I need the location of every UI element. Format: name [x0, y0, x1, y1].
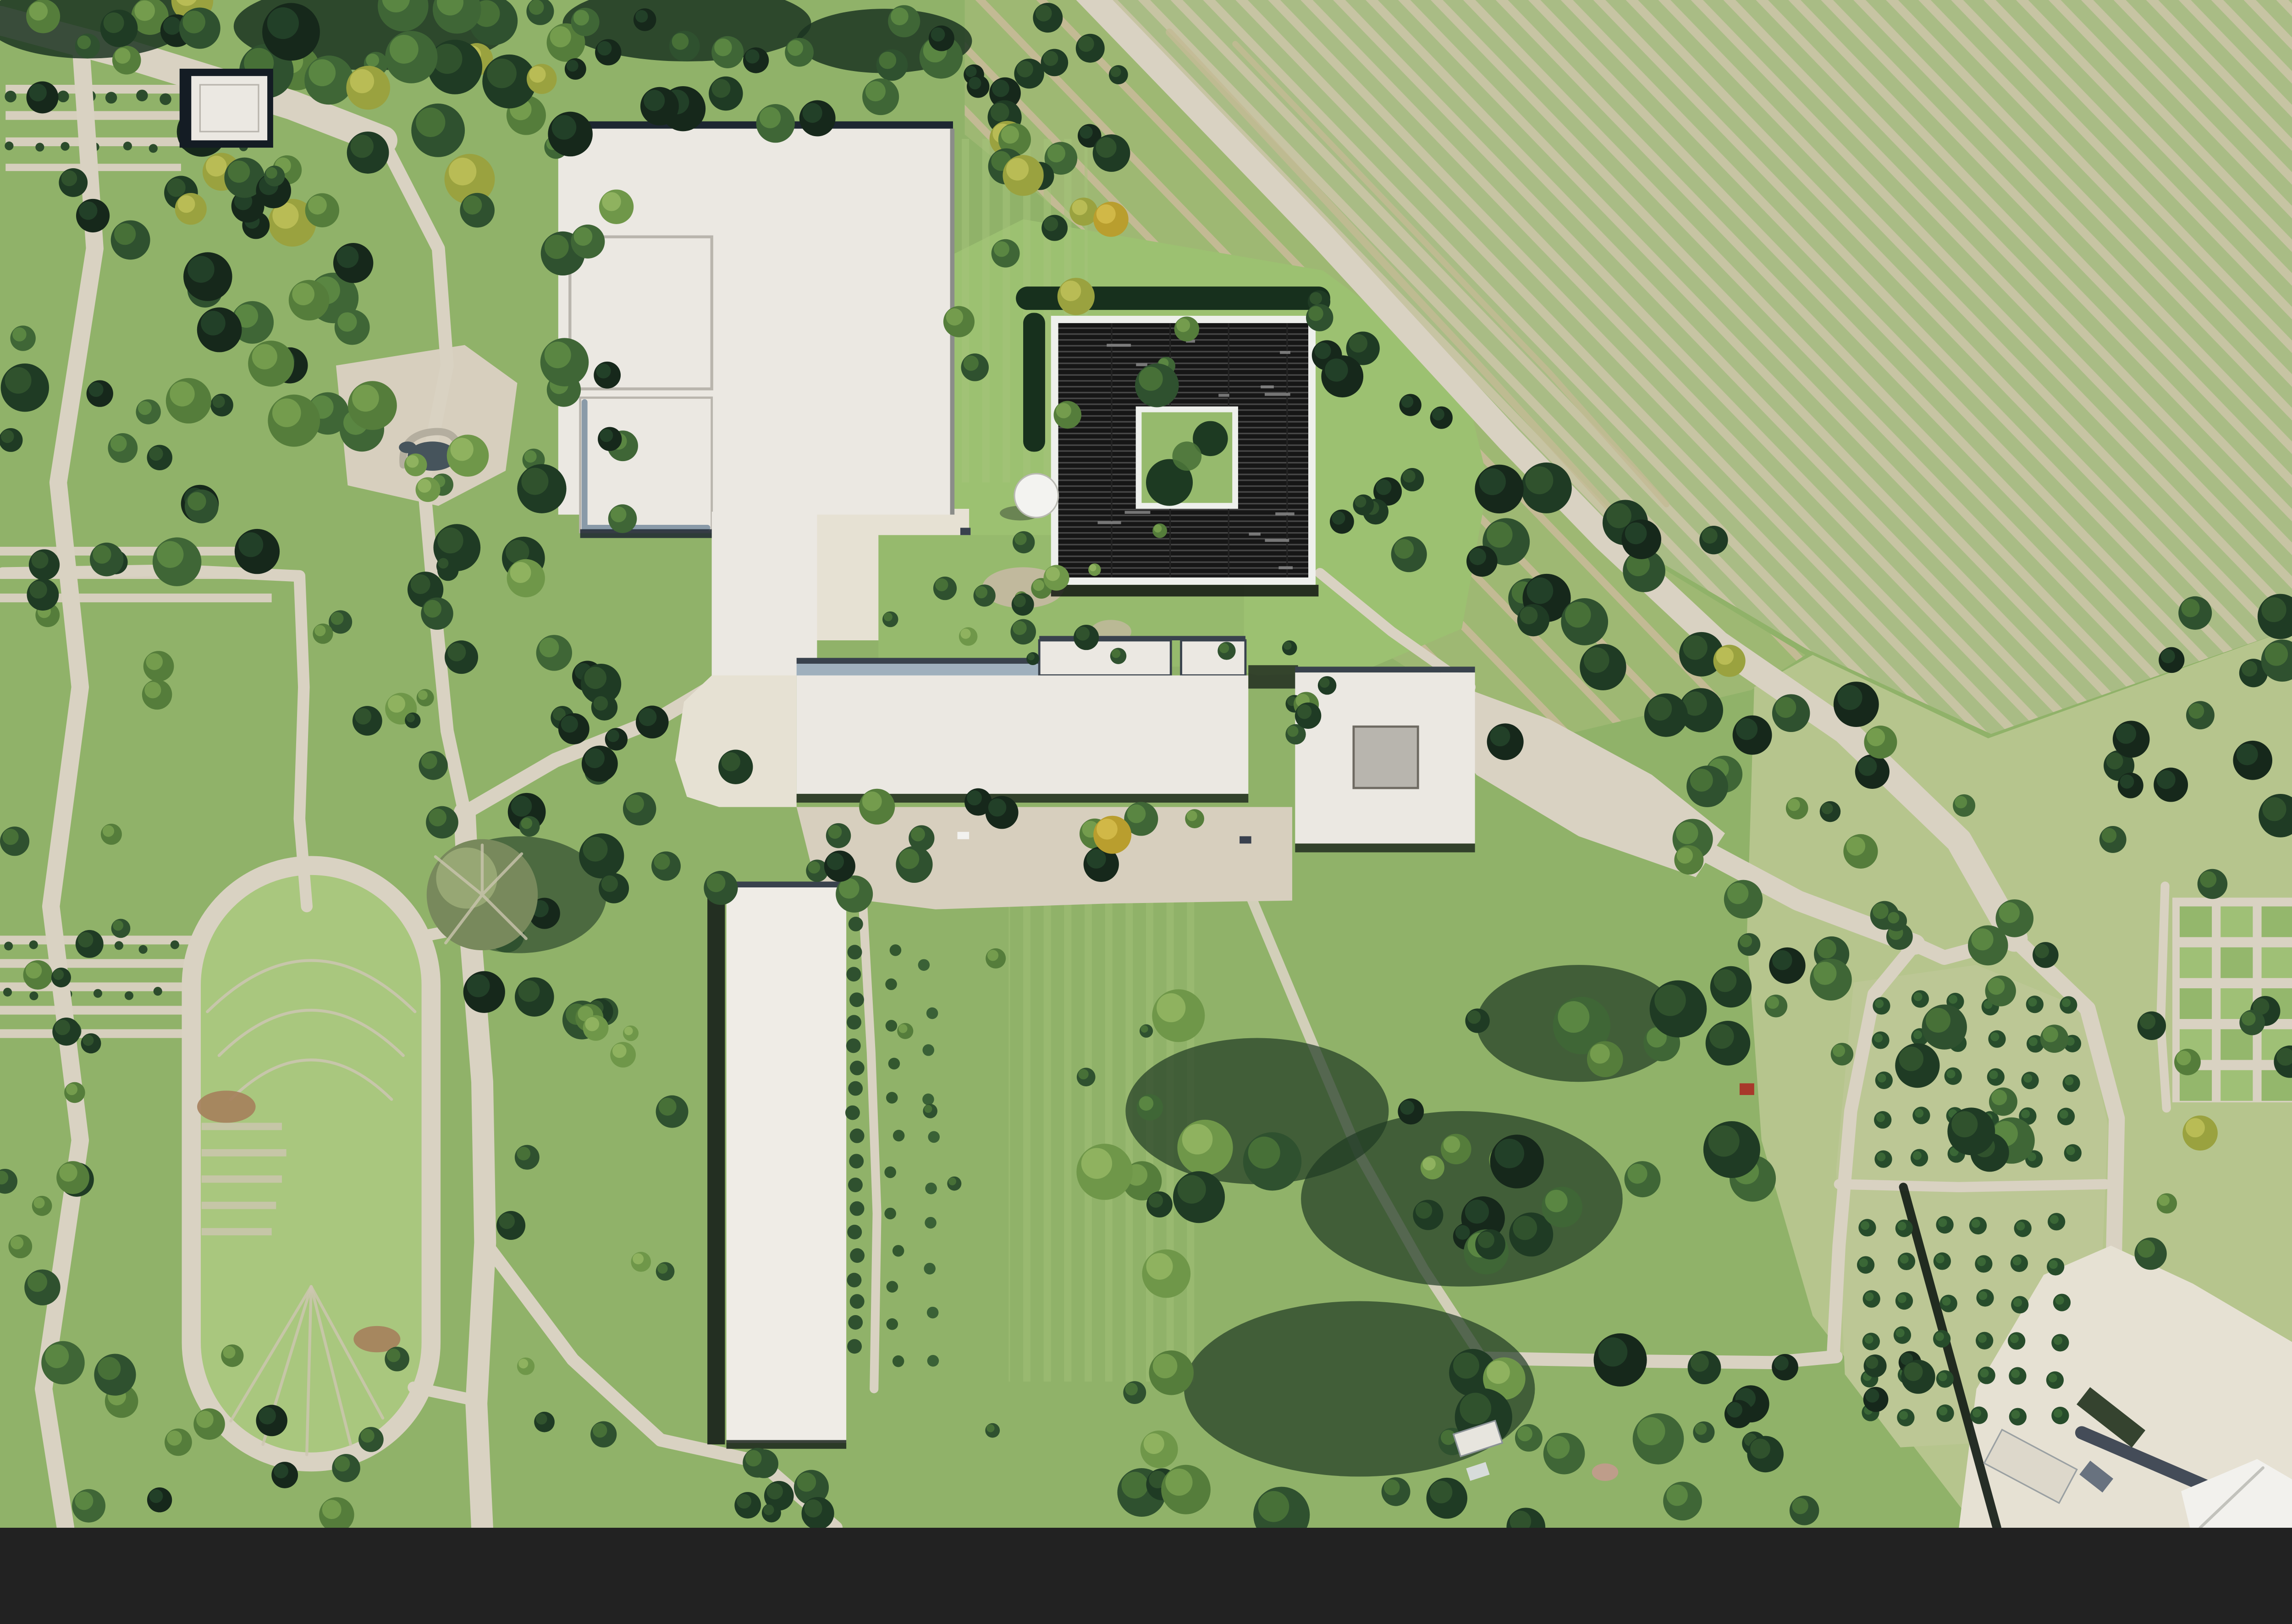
- hedge-row-east-of-greenhouse: [850, 1061, 865, 1075]
- trees-tree-highlight: [29, 84, 46, 101]
- trees-tree-highlight: [574, 227, 593, 246]
- forest-tree-highlight: [1384, 1480, 1400, 1496]
- bed-bushes: [123, 142, 132, 150]
- bed-bushes: [29, 991, 38, 1000]
- trees-tree-highlight: [267, 7, 299, 39]
- trees-tree-highlight: [1047, 144, 1065, 162]
- trees-tree-highlight: [449, 158, 476, 185]
- trees-tree-highlight: [78, 932, 93, 947]
- trees-tree-highlight: [1792, 1498, 1808, 1514]
- trees-tree-highlight: [552, 115, 577, 140]
- trees-tree-highlight: [624, 1027, 633, 1035]
- yard-trees-tree-highlight: [1127, 804, 1146, 823]
- trees-tree-highlight: [1999, 902, 2020, 923]
- orchard-trees-highlight: [1972, 1219, 1980, 1228]
- trees-tree-highlight: [2261, 597, 2286, 622]
- trees-tree-highlight: [55, 1020, 70, 1035]
- trees-tree-highlight: [1520, 606, 1538, 624]
- forest-tree-highlight: [1182, 1124, 1213, 1155]
- orchard-trees-highlight: [1939, 1372, 1947, 1381]
- trees-tree-highlight: [1625, 523, 1647, 545]
- trees-tree-highlight: [331, 612, 343, 625]
- shrub-row: [928, 1131, 940, 1143]
- trees-tree-highlight: [1080, 126, 1092, 138]
- trees-tree-highlight: [1056, 403, 1071, 418]
- forest-tree-highlight: [1487, 1360, 1510, 1384]
- forest-tree-highlight: [1121, 1472, 1148, 1498]
- long-building-skyband-shadow: [797, 658, 1045, 664]
- trees-tree-highlight: [1750, 1439, 1770, 1459]
- trees-tree-highlight: [788, 40, 804, 56]
- trees-tree-highlight: [2043, 1027, 2058, 1042]
- trees-tree-highlight: [1971, 928, 1993, 950]
- bed-bushes: [4, 941, 13, 950]
- orchard-trees-highlight: [2011, 1410, 2020, 1419]
- shrub-row: [925, 1217, 937, 1229]
- hedge-row-east-of-greenhouse: [847, 1339, 862, 1354]
- orchard-trees-highlight: [1913, 1151, 1922, 1160]
- trees-tree-highlight: [26, 963, 42, 979]
- forest-tree-highlight: [1708, 1125, 1739, 1156]
- lawn-shrubs-tree-highlight: [948, 1178, 956, 1185]
- oval-bed-strip: [202, 1149, 286, 1156]
- trees-tree-highlight: [2, 829, 18, 845]
- trees-tree-highlight: [545, 341, 571, 368]
- yellow-tree-highlight: [2186, 1118, 2205, 1137]
- trees-tree-highlight: [366, 54, 379, 67]
- trees-tree-highlight: [104, 12, 124, 33]
- trees-tree-highlight: [633, 1253, 644, 1264]
- bed-bushes: [5, 91, 17, 103]
- orchard-trees-highlight: [1972, 1409, 1981, 1417]
- trees-tree-highlight: [585, 1017, 599, 1031]
- trees-tree-highlight: [1899, 1046, 1923, 1071]
- trees-tree-highlight: [1479, 468, 1506, 495]
- forest-tree-highlight: [1146, 1253, 1173, 1280]
- forest-tree-highlight: [1495, 1139, 1524, 1168]
- orchard-trees-highlight: [2011, 1369, 2020, 1378]
- trees-tree-highlight: [585, 749, 605, 768]
- trees-tree-highlight: [611, 506, 626, 522]
- courtyard-bushes-tree-highlight: [1028, 653, 1035, 660]
- trees-tree-highlight: [518, 1359, 528, 1368]
- yellow-tree-highlight: [1006, 158, 1029, 181]
- trees-tree-highlight: [573, 10, 589, 26]
- solar-panel-glints: [1261, 385, 1274, 388]
- trees-tree-highlight: [593, 1423, 607, 1437]
- trees-tree-highlight: [879, 52, 896, 69]
- orchard-trees-highlight: [2062, 998, 2071, 1007]
- trees-tree-highlight: [1951, 1111, 1978, 1137]
- courtyard-bushes-tree-highlight: [1014, 595, 1026, 607]
- trees-tree-highlight: [550, 26, 571, 47]
- orchard-trees-highlight: [2016, 1222, 2025, 1230]
- trees-tree-highlight: [2262, 797, 2286, 821]
- orchard-trees-highlight: [1939, 1407, 1947, 1415]
- shrub-row: [890, 944, 902, 956]
- trees-tree-highlight: [607, 730, 619, 742]
- yard-trees-tree-highlight: [1187, 810, 1197, 821]
- orchard-trees-highlight: [1938, 1218, 1947, 1227]
- orchard-trees-highlight: [1942, 1297, 1950, 1305]
- yard-trees-tree-highlight: [911, 827, 925, 842]
- trees-tree-highlight: [1078, 36, 1094, 52]
- trees-tree-highlight: [98, 1357, 121, 1380]
- trees-tree-highlight: [66, 1084, 77, 1095]
- bedgrid-path: [2161, 886, 2167, 1108]
- solar-panel-glints: [1136, 363, 1147, 366]
- white-tank: [1014, 473, 1058, 517]
- oval-bed-strip: [202, 1123, 282, 1130]
- trees-tree-highlight: [149, 447, 163, 461]
- bed-cell: [2220, 1070, 2253, 1101]
- trees-tree-highlight: [804, 1499, 822, 1517]
- forest-tree-highlight: [1465, 1200, 1489, 1223]
- forest-tree-highlight: [1149, 1194, 1163, 1208]
- solar-panel-glints: [1107, 344, 1131, 347]
- forest-tree-highlight: [1545, 1190, 1568, 1212]
- hedge-row-east-of-greenhouse: [849, 1154, 864, 1168]
- aerial-scene-canvas: [0, 0, 2292, 1528]
- orchard-trees-highlight: [1861, 1221, 1869, 1230]
- trees-tree-highlight: [2106, 753, 2123, 770]
- trees-tree-highlight: [1788, 799, 1800, 811]
- hedge-row-east-of-greenhouse: [850, 1294, 865, 1309]
- square-building-shadow-south: [1295, 843, 1475, 852]
- trees-tree-highlight: [1487, 522, 1513, 548]
- bed-bushes: [3, 988, 12, 996]
- orchard-trees-highlight: [1865, 1292, 1873, 1301]
- solar-panel-glints: [1125, 511, 1151, 514]
- trees-tree-highlight: [12, 327, 27, 341]
- forest-tree-highlight: [1178, 1175, 1206, 1204]
- orchard-trees-highlight: [2049, 1374, 2057, 1382]
- courtyard-bushes-tree-highlight: [1046, 567, 1060, 581]
- trees-tree-highlight: [1709, 1024, 1734, 1049]
- forest-tree-highlight: [1598, 1338, 1627, 1367]
- forest-tree-highlight: [1081, 1148, 1112, 1178]
- courtyard-bushes-tree-highlight: [1013, 621, 1027, 635]
- hedge-row-east-of-greenhouse: [847, 1225, 862, 1239]
- trees-tree-highlight: [75, 1492, 93, 1510]
- trees-tree-highlight: [32, 551, 49, 568]
- trees-tree-highlight: [45, 1344, 69, 1368]
- courtyard-bushes-tree-highlight: [975, 586, 988, 599]
- trees-tree-highlight: [1740, 935, 1752, 947]
- orchard-trees-highlight: [1935, 1332, 1944, 1341]
- trees-tree-highlight: [1565, 602, 1591, 628]
- trees-tree-highlight: [1319, 677, 1329, 688]
- long-building-skyband: [797, 664, 1039, 677]
- trees-tree-highlight: [529, 0, 544, 15]
- orchard-trees-highlight: [1946, 1069, 1955, 1078]
- bed-bushes: [136, 90, 148, 102]
- trees-tree-highlight: [157, 541, 184, 568]
- connector-wing-roof: [712, 512, 817, 675]
- trees-tree-highlight: [437, 528, 463, 553]
- trees-tree-highlight: [2116, 723, 2136, 743]
- bed-cell: [2180, 988, 2212, 1019]
- trees-tree-highlight: [1691, 1354, 1709, 1372]
- orchard-trees-highlight: [1898, 1294, 1906, 1303]
- forest-tree-highlight: [1590, 1044, 1610, 1063]
- trees-tree-highlight: [745, 50, 760, 64]
- trees-tree-highlight: [992, 80, 1009, 97]
- yard-trees-tree-highlight: [862, 792, 882, 811]
- orchard-trees-highlight: [1935, 1255, 1944, 1263]
- orchard-trees-highlight: [1915, 1109, 1923, 1118]
- lawn-shrubs-tree-highlight: [1125, 1383, 1138, 1395]
- trees-tree-highlight: [722, 752, 740, 771]
- trees-tree-highlight: [1325, 358, 1348, 381]
- shrub-row: [922, 1094, 934, 1106]
- park-path: [299, 576, 307, 907]
- trees-tree-highlight: [467, 974, 490, 997]
- trees-tree-highlight: [322, 1500, 342, 1519]
- trees-tree-highlight: [2137, 1240, 2155, 1258]
- orchard-trees-highlight: [2013, 1298, 2022, 1307]
- forest-tree-highlight: [1627, 1164, 1647, 1184]
- trees-tree-highlight: [2159, 1195, 2170, 1206]
- bed-bushes: [171, 941, 179, 949]
- lawn-shrubs-tree-highlight: [924, 1105, 932, 1113]
- trees-tree-highlight: [387, 1349, 400, 1362]
- trees-tree-highlight: [1727, 883, 1748, 904]
- yellow-tree-highlight: [350, 69, 374, 94]
- orchard-trees-highlight: [1899, 1411, 1908, 1420]
- orchard-trees-highlight: [1864, 1335, 1873, 1343]
- orchard-trees-highlight: [1876, 1113, 1885, 1122]
- trees-tree-highlight: [487, 59, 517, 88]
- trees-tree-highlight: [1866, 1356, 1878, 1369]
- bed-bushes: [105, 92, 117, 104]
- trees-tree-highlight: [1774, 1356, 1789, 1371]
- trees-tree-highlight: [1846, 837, 1865, 855]
- trees-tree-highlight: [745, 1450, 762, 1467]
- greenhouse-west-shadow: [707, 889, 725, 1444]
- orchard-trees-highlight: [1978, 1334, 1987, 1343]
- aerial-photo-screenshot: [0, 0, 2292, 1528]
- trees-tree-highlight: [1683, 635, 1707, 660]
- forest-tree-highlight: [1248, 1137, 1280, 1169]
- trees-tree-highlight: [450, 438, 473, 461]
- trees-tree-highlight: [994, 241, 1009, 257]
- greenhouse-building-roof: [727, 887, 847, 1443]
- trees-tree-highlight: [5, 367, 32, 394]
- forest-tree-highlight: [1157, 993, 1185, 1022]
- trees-tree-highlight: [1310, 292, 1322, 304]
- hedge-row-east-of-greenhouse: [848, 1315, 863, 1330]
- orchard-trees-highlight: [1977, 1257, 1986, 1266]
- courtyard-bushes-tree-highlight: [1089, 564, 1096, 571]
- trees-tree-highlight: [1677, 848, 1693, 864]
- yard-trees-tree-highlight: [808, 861, 820, 874]
- courtyard-bushes-tree-highlight: [1014, 533, 1027, 545]
- trees-tree-highlight: [521, 818, 532, 829]
- trees-tree-highlight: [29, 581, 47, 599]
- lawn-shrubs-tree-highlight: [898, 1024, 907, 1033]
- hedge-row-east-of-greenhouse: [849, 992, 864, 1007]
- trees-tree-highlight: [2102, 828, 2116, 842]
- trees-tree-highlight: [259, 1407, 276, 1425]
- trees-tree-highlight: [201, 311, 226, 336]
- shrub-row: [924, 1263, 936, 1275]
- courtyard-bushes-tree-highlight: [935, 578, 948, 591]
- trees-tree-highlight: [1713, 969, 1736, 992]
- trees-tree-highlight: [79, 201, 97, 220]
- white-van: [958, 832, 970, 839]
- trees-tree-highlight: [103, 825, 114, 837]
- shrub-row: [886, 1092, 898, 1104]
- trees-tree-highlight: [463, 196, 482, 215]
- courtyard-bushes-tree-highlight: [1154, 524, 1162, 532]
- trees-tree-highlight: [1991, 1090, 2007, 1105]
- trees-tree-highlight: [1332, 512, 1345, 525]
- trees-tree-highlight: [1727, 1402, 1742, 1418]
- trees-tree-highlight: [115, 48, 130, 64]
- trees-tree-highlight: [421, 753, 437, 769]
- trees-tree-highlight: [11, 1236, 23, 1249]
- orchard-trees-highlight: [1913, 1030, 1922, 1039]
- trees-tree-highlight: [1432, 408, 1444, 420]
- hedge-row-east-of-greenhouse: [850, 1201, 865, 1216]
- trees-tree-highlight: [714, 39, 732, 56]
- trees-tree-highlight: [635, 10, 648, 22]
- trees-tree-highlight: [1775, 697, 1796, 718]
- courtyard-bushes-tree-highlight: [1033, 579, 1044, 591]
- parked-car: [960, 528, 970, 535]
- trees-tree-highlight: [83, 1035, 94, 1046]
- trees-tree-highlight: [1676, 822, 1698, 844]
- forest-tree-highlight: [1478, 1232, 1494, 1248]
- forest-tree-highlight: [1453, 1353, 1479, 1379]
- trees-tree-highlight: [1813, 962, 1836, 985]
- trees-tree-highlight: [149, 1489, 163, 1503]
- yard-trees-tree-highlight: [827, 853, 844, 870]
- shrub-row: [884, 1167, 896, 1178]
- trees-tree-highlight: [134, 0, 155, 21]
- trees-tree-highlight: [406, 455, 419, 468]
- building-gap-shadow: [1248, 665, 1298, 688]
- bare-soil-patch: [197, 1090, 256, 1123]
- trees-tree-highlight: [639, 708, 656, 726]
- yellow-tree-highlight: [1096, 204, 1116, 224]
- trees-tree-highlight: [1837, 685, 1862, 710]
- bed-cell: [2262, 906, 2292, 937]
- dark-car: [1240, 836, 1251, 843]
- square-building-shadow-top: [1295, 666, 1475, 672]
- orchard-trees-highlight: [2029, 1037, 2038, 1046]
- forest-tree-highlight: [1430, 1481, 1452, 1503]
- trees-tree-highlight: [388, 695, 405, 713]
- orchard-trees-highlight: [1897, 1222, 1906, 1230]
- trees-tree-highlight: [1297, 705, 1312, 719]
- trees-tree-highlight: [964, 356, 979, 371]
- trees-tree-highlight: [167, 1431, 182, 1446]
- hedge-row-east-of-greenhouse: [850, 1248, 865, 1263]
- red-roof-hut: [1740, 1083, 1754, 1095]
- bed-bushes: [29, 941, 38, 949]
- hedge-row-east-of-greenhouse: [850, 1129, 865, 1143]
- trees-tree-highlight: [1526, 578, 1553, 604]
- trees-tree-highlight: [536, 1413, 547, 1425]
- trees-tree-highlight: [797, 1472, 816, 1492]
- orchard-trees-highlight: [2054, 1409, 2062, 1418]
- shrub-row: [925, 1183, 937, 1195]
- trees-tree-highlight: [1988, 978, 2005, 995]
- yard-trees-tree-highlight: [899, 849, 919, 869]
- trees-tree-highlight: [539, 638, 559, 657]
- pond: [399, 441, 416, 453]
- trees-tree-highlight: [266, 167, 277, 179]
- trees-tree-highlight: [626, 795, 644, 813]
- trees-tree-highlight: [672, 33, 689, 50]
- trees-tree-highlight: [518, 980, 540, 1002]
- trees-tree-highlight: [602, 192, 621, 211]
- orchard-trees-highlight: [1990, 1032, 1999, 1041]
- oval-bed-strip: [202, 1202, 276, 1209]
- trees-tree-highlight: [1314, 342, 1331, 359]
- orchard-trees-highlight: [1875, 999, 1884, 1008]
- trees-tree-highlight: [600, 429, 613, 442]
- oval-bed-strip: [202, 1175, 282, 1183]
- trees-tree-highlight: [1858, 757, 1877, 776]
- annex-shadow-south: [580, 529, 715, 538]
- trees-tree-highlight: [561, 716, 578, 732]
- trees-tree-highlight: [1036, 5, 1052, 22]
- forest-tree-highlight: [1460, 1393, 1491, 1424]
- trees-tree-highlight: [206, 156, 227, 177]
- trees-tree-highlight: [223, 1346, 235, 1359]
- trees-tree-highlight: [1110, 66, 1121, 77]
- lawn-shrubs-tree-highlight: [1078, 1069, 1088, 1079]
- solar-panel-glints: [1249, 533, 1260, 535]
- yellow-tree-highlight: [1716, 647, 1734, 665]
- trees-tree-highlight: [1401, 396, 1414, 408]
- trees-tree-highlight: [529, 66, 546, 83]
- trees-tree-highlight: [601, 875, 618, 892]
- trees-tree-highlight: [499, 1213, 515, 1229]
- trees-tree-highlight: [187, 256, 215, 283]
- shrub-row: [887, 1318, 898, 1330]
- trees-tree-highlight: [228, 160, 250, 182]
- forest-tree-highlight: [1165, 1469, 1192, 1496]
- flower-patch: [1592, 1464, 1618, 1481]
- oval-garden-lawn: [191, 865, 431, 1462]
- orchard-trees-highlight: [2050, 1215, 2059, 1224]
- trees-tree-highlight: [584, 667, 607, 689]
- trees-tree-highlight: [1017, 61, 1033, 77]
- bed-bushes: [149, 144, 158, 153]
- trees-tree-highlight: [411, 574, 430, 594]
- bed-cell: [2180, 906, 2212, 937]
- shrub-row: [922, 1044, 934, 1056]
- trees-tree-highlight: [1772, 950, 1792, 970]
- trees-tree-highlight: [1904, 1362, 1923, 1381]
- trees-tree-highlight: [931, 28, 945, 42]
- skylight-box: [1181, 640, 1245, 676]
- trees-tree-highlight: [2242, 1012, 2256, 1026]
- trees-tree-highlight: [309, 59, 336, 86]
- main-building-annex-roof: [580, 398, 712, 532]
- forest-tree-highlight: [1422, 1157, 1436, 1171]
- trees-tree-highlight: [969, 77, 981, 89]
- trees-tree-highlight: [77, 35, 91, 49]
- trees-tree-highlight: [2120, 775, 2134, 789]
- trees-tree-highlight: [416, 108, 445, 137]
- forest-tree-highlight: [1558, 1001, 1589, 1033]
- trees-tree-highlight: [177, 195, 195, 213]
